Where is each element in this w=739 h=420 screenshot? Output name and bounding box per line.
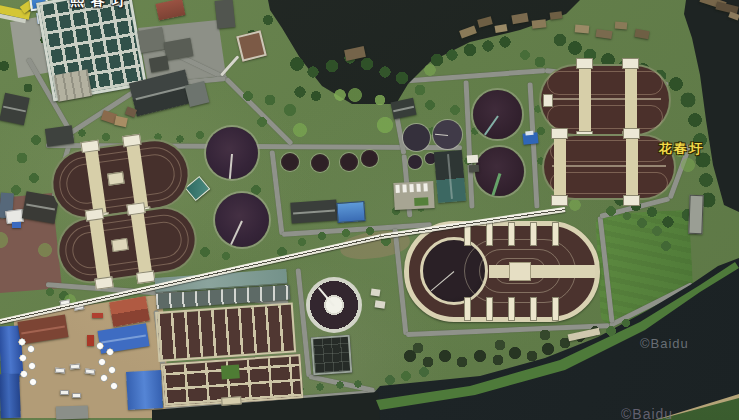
baidu-watermark: ©Baidu	[621, 406, 673, 420]
truck	[70, 364, 80, 370]
red-container	[92, 313, 103, 318]
red-container	[87, 335, 94, 346]
baidu-watermark: ©Baidu	[640, 336, 689, 351]
truck	[72, 393, 81, 398]
satellite-map-viewport[interactable]: 熙春圩 花春圩 ©Baidu ©Baidu	[0, 0, 739, 420]
silo-tanks	[0, 0, 739, 420]
place-label-huachunwei: 花春圩	[659, 140, 704, 158]
truck	[60, 390, 69, 395]
truck	[55, 368, 65, 374]
place-label-top: 熙春圩	[70, 0, 133, 10]
